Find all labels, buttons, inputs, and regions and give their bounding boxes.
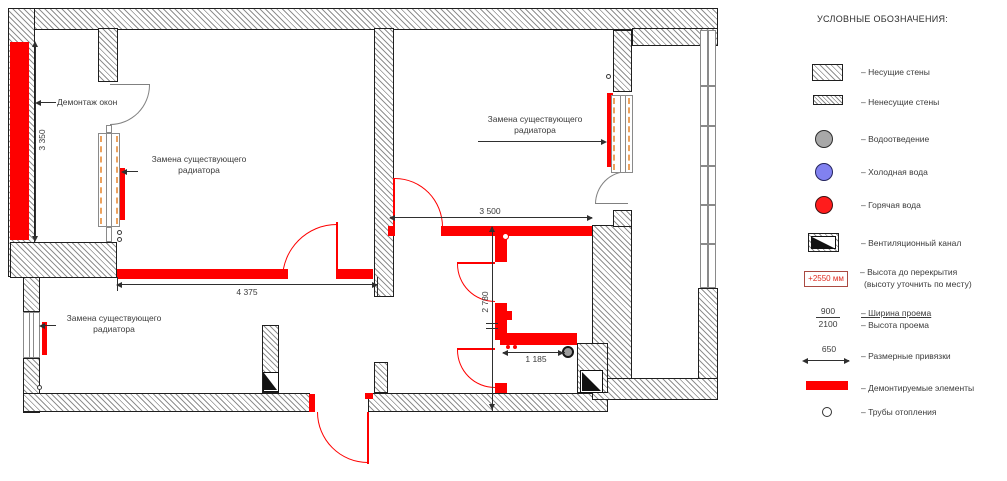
legend-label-ceiling-height: – Высота до перекрытия (860, 267, 957, 278)
legend-label-dimension-ties: – Размерные привязки (861, 351, 951, 362)
dimension-living-line (117, 284, 377, 285)
legend-label-demolished: – Демонтируемые элементы (861, 383, 974, 394)
annotation-line: радиатора (474, 125, 596, 136)
dimension-tick (377, 277, 378, 296)
balcony-mullion-5 (700, 243, 716, 245)
legend: УСЛОВНЫЕ ОБОЗНАЧЕНИЯ: – Несущие стены – … (780, 0, 1007, 481)
door-arc-entrance (317, 412, 368, 463)
dimension-tie-line (804, 360, 849, 361)
dimension-loggia-line (35, 43, 36, 240)
window-bedroom-frame (620, 95, 626, 173)
heating-pipe-1 (117, 230, 122, 235)
floor-plan: 3 350 4 375 3 500 2 780 1 185 Демонтаж о… (0, 0, 730, 481)
balcony-mullion-3 (700, 165, 716, 167)
annotation-demolish-windows: Демонтаж окон (57, 97, 117, 108)
balcony-mullion-1 (700, 85, 716, 87)
legend-title: УСЛОВНЫЕ ОБОЗНАЧЕНИЯ: (817, 14, 948, 24)
dimension-bedroom-line (390, 217, 592, 218)
annotation-replace-radiator-2: Замена существующего радиатора (474, 114, 596, 136)
legend-label-opening-height: – Высота проема (861, 320, 929, 331)
window-bedroom-dash-b (628, 98, 630, 170)
partition-stub-b (106, 227, 112, 242)
dimension-bath-line-v (492, 227, 493, 412)
entrance-jamb-r (365, 393, 373, 399)
dimension-tie-value: 650 (816, 344, 842, 355)
door-jamb-bedroom-r (441, 226, 452, 236)
legend-label-heating-pipes: – Трубы отопления (861, 407, 937, 418)
door-arc-living (282, 224, 337, 279)
legend-label-hot-water: – Горячая вода (861, 200, 921, 211)
legend-label-opening-width: – Ширина проема (861, 308, 931, 319)
leader-line (126, 171, 138, 172)
wall-pier-mid-top (98, 28, 118, 82)
window-room2-frame (29, 312, 34, 358)
heating-pipe-icon (822, 407, 832, 417)
annotation-line: Замена существующего (474, 114, 596, 125)
entrance-jamb-l (309, 394, 315, 412)
leader-line (40, 102, 56, 103)
wall-loggia-bottom (10, 242, 117, 278)
cold-water-icon (815, 163, 833, 181)
dimension-bath-width: 1 185 (508, 354, 564, 365)
opening-height-value: 2100 (814, 319, 842, 330)
dimension-tick (117, 277, 118, 291)
demolished-elements-swatch (806, 381, 848, 390)
annotation-line: радиатора (52, 324, 176, 335)
wall-left-lower-a (23, 277, 40, 312)
wall-bottom-left (23, 393, 310, 412)
balcony-glazing-mid (707, 30, 709, 288)
balcony-mullion-4 (700, 204, 716, 206)
annotation-line: радиатора (138, 165, 260, 176)
ceiling-height-badge: +2550 мм (804, 271, 848, 287)
dimension-break (486, 323, 498, 324)
demolished-stub-bottom (495, 383, 507, 393)
window-loggia-frame (106, 133, 112, 227)
door-arc-balcony (595, 171, 628, 204)
dimension-arrow (587, 215, 593, 221)
hot-water-point-1 (506, 345, 510, 349)
demolished-wall-living-a (117, 269, 288, 279)
legend-label-vent-duct: – Вентиляционный канал (861, 238, 961, 249)
drainage-icon (815, 130, 833, 148)
dimension-break (486, 328, 498, 329)
legend-bearing-wall-swatch (812, 64, 843, 81)
hot-water-riser (502, 233, 509, 240)
dimension-loggia-height: 3 350 (37, 120, 49, 160)
heating-pipe-3 (37, 385, 42, 390)
wall-balcony-bottom (592, 378, 718, 400)
annotation-line: Замена существующего (138, 154, 260, 165)
demolished-wall-living-b (338, 269, 373, 279)
annotation-replace-radiator-1: Замена существующего радиатора (138, 154, 260, 176)
legend-label-drainage: – Водоотведение (861, 134, 929, 145)
window-bedroom-dash-a (613, 98, 615, 170)
heating-pipe-2 (117, 237, 122, 242)
leader-line (478, 141, 604, 142)
wall-right-pier-b (613, 210, 632, 227)
dimension-bath-depth: 2 780 (480, 282, 492, 322)
annotation-replace-radiator-3: Замена существующего радиатора (52, 313, 176, 335)
window-loggia-dash-b (116, 136, 118, 224)
door-arc-bath (457, 350, 495, 388)
door-jamb-bedroom-l (388, 226, 395, 236)
legend-label-nonbearing-walls: – Ненесущие стены (861, 97, 939, 108)
heating-pipe-4 (606, 74, 611, 79)
demolished-bath-wall-h (500, 333, 577, 345)
window-loggia-dash-a (100, 136, 102, 224)
legend-label-ceiling-height-2: (высоту уточнить по месту) (864, 279, 972, 290)
dimension-bedroom-width: 3 500 (458, 206, 522, 217)
hot-water-point-2 (513, 345, 517, 349)
wall-hall-pier (374, 362, 388, 393)
demolished-wall-bedroom (452, 226, 592, 236)
balcony-mullion-2 (700, 125, 716, 127)
partition-stub-a (106, 125, 112, 133)
wall-top (8, 8, 718, 30)
legend-label-cold-water: – Холодная вода (861, 167, 928, 178)
wall-bottom-right (368, 393, 608, 412)
legend-nonbearing-wall-swatch (813, 95, 843, 105)
dimension-bath-line-h (503, 352, 565, 353)
dimension-tie-arrow (844, 358, 850, 364)
wall-mid-bearing (374, 28, 394, 297)
legend-label-bearing-walls: – Несущие стены (861, 67, 930, 78)
dimension-living-width: 4 375 (215, 287, 279, 298)
wall-right-pier-a (613, 30, 632, 92)
door-arc-bedroom (395, 178, 443, 227)
opening-width-value: 900 (816, 306, 840, 318)
dimension-tie-arrow (802, 358, 808, 364)
demolished-bath-notch (507, 311, 512, 320)
demolition-plan-sheet: 3 350 4 375 3 500 2 780 1 185 Демонтаж о… (0, 0, 1007, 481)
demolished-window-left-wall (10, 42, 29, 240)
annotation-line: Замена существующего (52, 313, 176, 324)
hot-water-icon (815, 196, 833, 214)
